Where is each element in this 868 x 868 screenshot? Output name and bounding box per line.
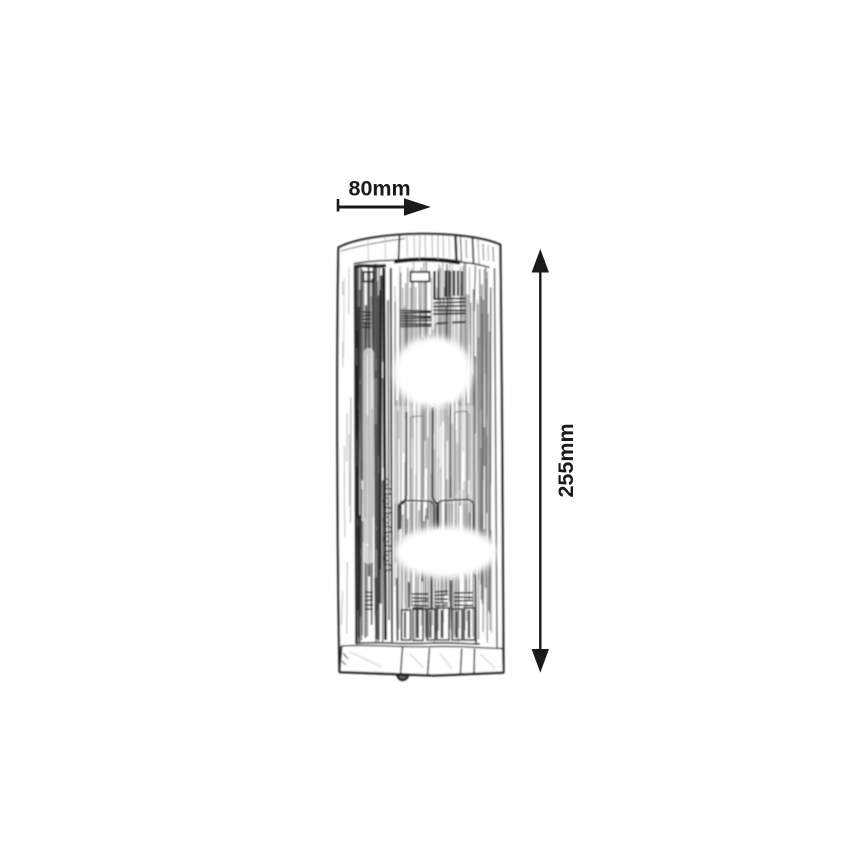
svg-text:80mm: 80mm bbox=[349, 177, 411, 201]
svg-text:255mm: 255mm bbox=[554, 423, 578, 497]
